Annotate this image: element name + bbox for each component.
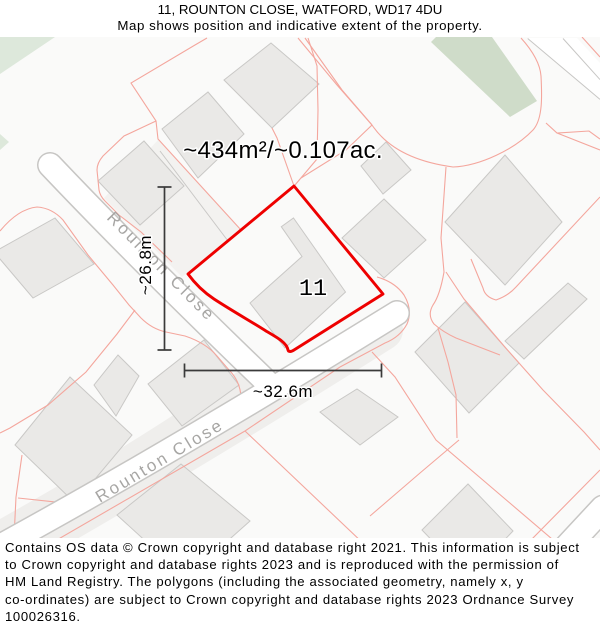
- svg-text:~434m²/~0.107ac.: ~434m²/~0.107ac.: [183, 137, 383, 164]
- svg-text:11: 11: [299, 276, 327, 303]
- svg-text:~32.6m: ~32.6m: [253, 382, 313, 401]
- svg-text:~26.8m: ~26.8m: [136, 235, 155, 295]
